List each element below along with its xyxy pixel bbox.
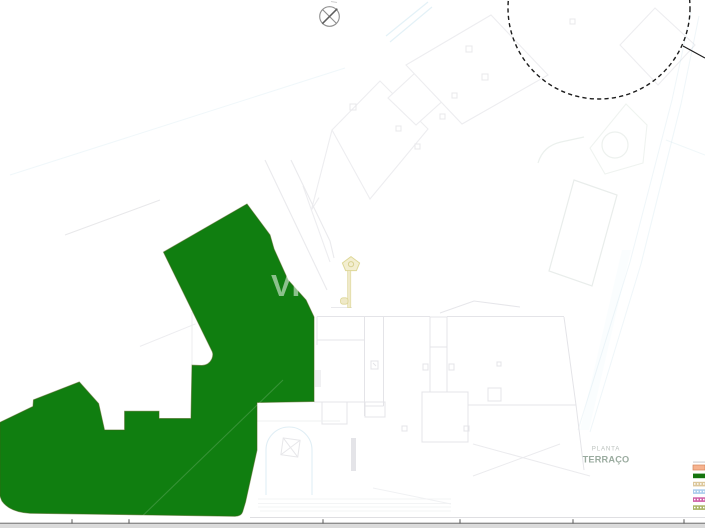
svg-text:PLANTA: PLANTA	[592, 446, 620, 453]
svg-text:VI: VI	[271, 268, 300, 303]
svg-text:TERRAÇO: TERRAÇO	[583, 455, 630, 465]
